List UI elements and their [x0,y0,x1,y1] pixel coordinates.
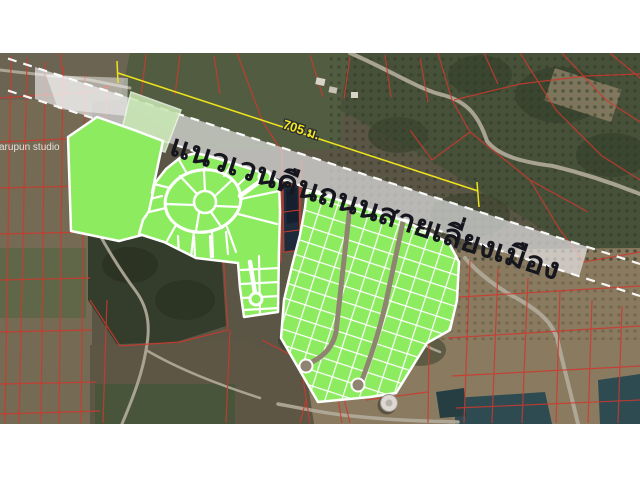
map-canvas: 705 ม. แนวเวนคืนถนนสายเลี่ยงเมือง Jarupu… [0,0,640,480]
watermark: Jarupun studio [0,142,60,153]
letterbox-top [0,0,640,53]
cul-de-sac-bulb [352,379,365,392]
letterbox-bottom [0,424,640,480]
cul-de-sac-bulb [250,293,262,305]
screenshot-root: 705 ม. แนวเวนคืนถนนสายเลี่ยงเมือง Jarupu… [0,0,640,480]
satellite-background: 705 ม. แนวเวนคืนถนนสายเลี่ยงเมือง Jarupu… [0,53,640,424]
cul-de-sac-bulb [300,360,313,373]
